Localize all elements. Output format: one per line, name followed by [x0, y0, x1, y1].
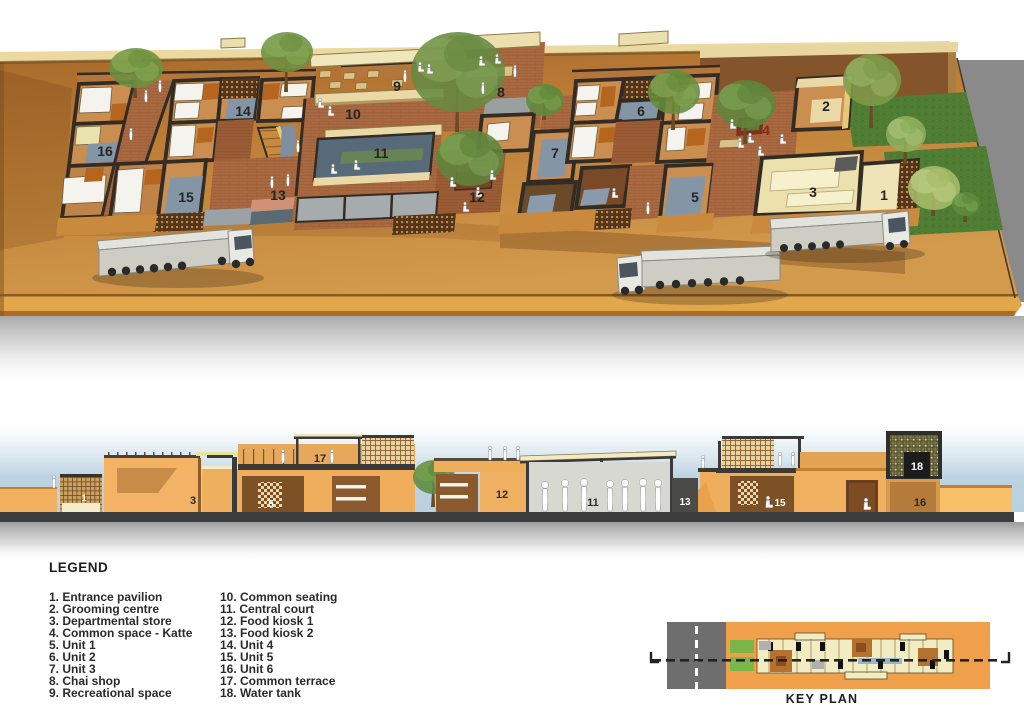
svg-text:1: 1	[880, 187, 888, 203]
svg-text:5: 5	[691, 189, 699, 205]
svg-text:12: 12	[469, 189, 485, 205]
svg-text:12: 12	[496, 489, 508, 501]
svg-text:15: 15	[178, 189, 194, 205]
svg-text:1: 1	[81, 493, 86, 503]
svg-text:6: 6	[637, 103, 645, 119]
svg-text:9. Recreational space: 9. Recreational space	[49, 686, 172, 700]
svg-text:14: 14	[235, 103, 251, 119]
svg-text:15: 15	[774, 498, 786, 509]
svg-text:3: 3	[190, 495, 196, 507]
svg-text:10: 10	[345, 106, 361, 122]
svg-text:11: 11	[587, 497, 599, 509]
svg-text:7: 7	[551, 145, 559, 161]
svg-text:5: 5	[268, 499, 274, 510]
svg-text:8: 8	[497, 84, 505, 100]
svg-text:16: 16	[914, 497, 926, 509]
svg-text:18. Water tank: 18. Water tank	[220, 686, 301, 700]
svg-text:13: 13	[270, 187, 286, 203]
svg-text:4: 4	[762, 122, 770, 138]
svg-text:KEY PLAN: KEY PLAN	[786, 692, 859, 706]
svg-text:9: 9	[393, 78, 401, 94]
svg-text:LEGEND: LEGEND	[49, 560, 108, 575]
svg-text:11: 11	[374, 145, 389, 161]
svg-text:18: 18	[911, 461, 923, 473]
svg-text:16: 16	[97, 143, 113, 159]
svg-text:3: 3	[809, 184, 817, 200]
svg-text:17: 17	[314, 453, 326, 465]
svg-text:13: 13	[679, 497, 691, 508]
svg-text:2: 2	[822, 98, 830, 114]
